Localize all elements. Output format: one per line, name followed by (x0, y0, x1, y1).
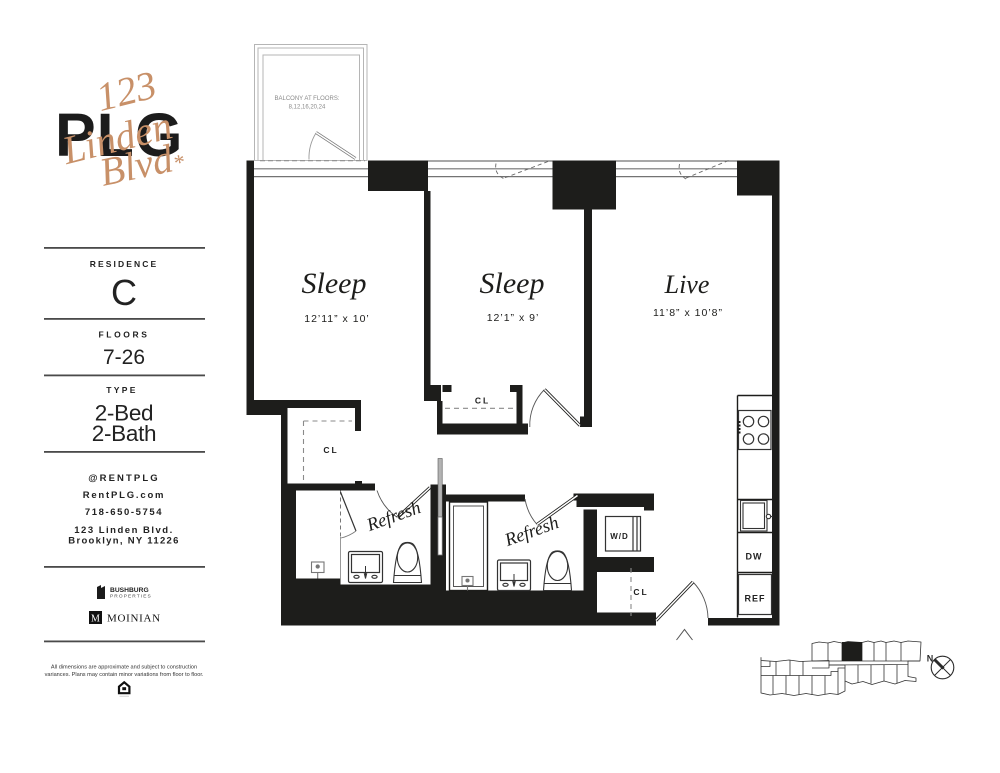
svg-text:Brooklyn, NY 11226: Brooklyn, NY 11226 (68, 536, 179, 547)
svg-text:123 Linden Blvd.: 123 Linden Blvd. (74, 525, 174, 536)
svg-text:variances. Plans may contain m: variances. Plans may contain minor varia… (45, 672, 204, 678)
svg-text:718-650-5754: 718-650-5754 (85, 507, 163, 518)
svg-text:BUSHBURG: BUSHBURG (110, 587, 149, 594)
svg-text:BALCONY AT FLOORS:: BALCONY AT FLOORS: (274, 96, 339, 102)
svg-text:11’8” x 10’8”: 11’8” x 10’8” (653, 307, 723, 319)
svg-text:PROPERTIES: PROPERTIES (110, 594, 152, 600)
svg-text:8,12,16,20,24: 8,12,16,20,24 (289, 105, 326, 111)
svg-text:W/D: W/D (610, 532, 629, 541)
svg-text:RentPLG.com: RentPLG.com (83, 490, 166, 501)
svg-text:All dimensions are approximate: All dimensions are approximate and subje… (51, 665, 197, 671)
svg-text:Sleep: Sleep (480, 267, 545, 300)
svg-text:C: C (111, 272, 137, 313)
svg-text:DW: DW (746, 552, 763, 562)
svg-text:CL: CL (475, 396, 490, 406)
svg-text:Sleep: Sleep (302, 267, 367, 300)
svg-text:RESIDENCE: RESIDENCE (90, 259, 159, 269)
svg-text:Live: Live (664, 270, 710, 299)
svg-text:2-Bath: 2-Bath (92, 421, 157, 446)
svg-text:12’11” x 10’: 12’11” x 10’ (304, 313, 370, 325)
svg-text:@RENTPLG: @RENTPLG (88, 473, 159, 484)
svg-text:CL: CL (633, 587, 648, 597)
svg-text:MOINIAN: MOINIAN (107, 613, 161, 625)
svg-text:TYPE: TYPE (106, 385, 137, 395)
svg-text:REF: REF (745, 594, 766, 604)
svg-text:M: M (91, 613, 100, 624)
svg-text:CL: CL (323, 445, 338, 455)
svg-text:FLOORS: FLOORS (98, 330, 149, 340)
svg-text:7-26: 7-26 (103, 346, 145, 369)
svg-text:N: N (927, 654, 934, 664)
svg-text:12’1” x 9’: 12’1” x 9’ (487, 312, 540, 324)
